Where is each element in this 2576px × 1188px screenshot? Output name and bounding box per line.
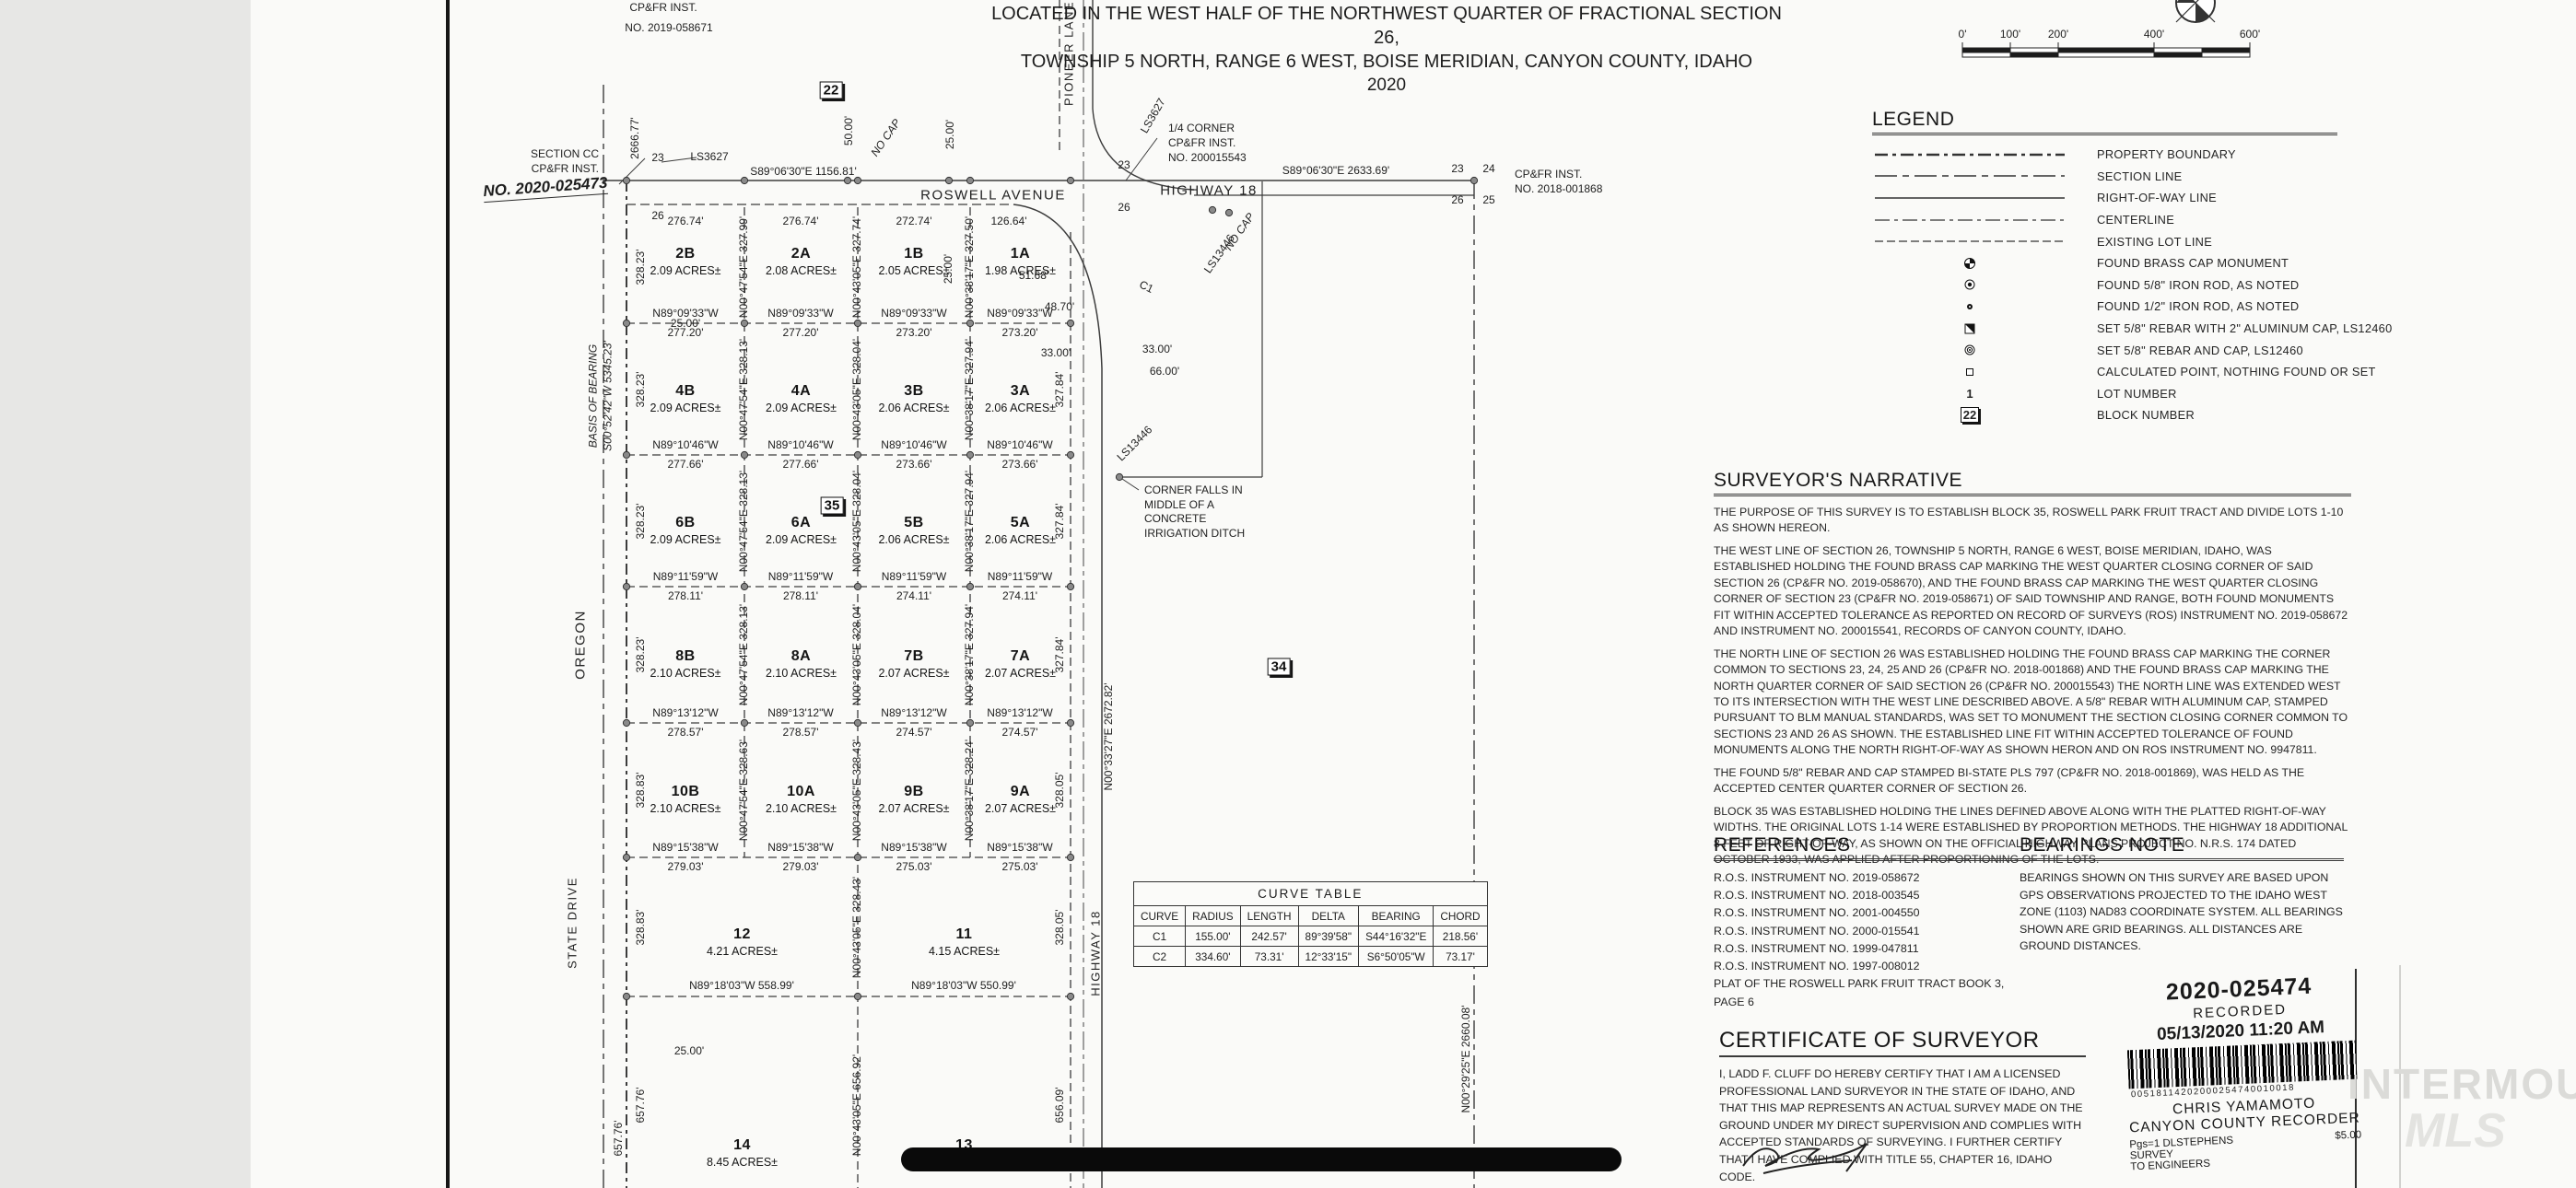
pt-cap-symbol — [1872, 343, 2067, 357]
narrative-body: THE PURPOSE OF THIS SURVEY IS TO ESTABLI… — [1714, 505, 2351, 868]
boundary-bearing: N89°13'12"W — [767, 706, 833, 721]
boundary-bearing-vertical: N00°43'05"E 328.04' — [850, 604, 865, 705]
lot-acreage: 2.07 ACRES± — [985, 667, 1056, 680]
bearings-note-text: BEARINGS SHOWN ON THIS SURVEY ARE BASED … — [2020, 869, 2344, 955]
curve-table-header: BEARING — [1359, 906, 1434, 926]
lot-number: 12 — [707, 926, 778, 943]
boundary-bearing: N89°18'03"W 550.99' — [911, 979, 1016, 994]
lot-number: 9A — [985, 784, 1056, 800]
boundary-bearing-vertical: N00°47'54"E 328.13' — [737, 470, 752, 571]
lot-label: 2A2.08 ACRES± — [766, 246, 837, 277]
lot-label: 9A2.07 ACRES± — [985, 784, 1056, 815]
monument-point — [854, 993, 861, 999]
plat-annotation: 33.00' — [1041, 346, 1071, 361]
scale-label: 600' — [2240, 28, 2260, 42]
monument-point — [741, 177, 747, 183]
boundary-bearing-vertical: N00°43'05"E 327.74' — [850, 215, 865, 317]
lot-acreage: 2.06 ACRES± — [985, 533, 1056, 546]
boundary-bearing-vertical: 327.84' — [1053, 503, 1068, 539]
plat-annotation: S89°06'30"E 1156.81' — [750, 165, 857, 180]
line-section-symbol — [1872, 171, 2067, 181]
monument-point — [623, 451, 629, 458]
monument-point — [623, 320, 629, 326]
monument-point — [854, 583, 861, 589]
boundary-bearing: N89°10'46"W — [767, 438, 833, 453]
lot-acreage: 2.05 ACRES± — [878, 264, 949, 277]
pt-brass-symbol-icon — [1962, 256, 1977, 271]
boundary-distance: 277.20' — [783, 326, 819, 341]
survey-plat-page: LOCATED IN THE WEST HALF OF THE NORTHWES… — [0, 0, 2576, 1188]
plat-annotation: 26 — [1451, 193, 1463, 208]
watermark-line-1: INTERMOUNTAIN — [2348, 1059, 2576, 1109]
line-center-symbol — [1872, 215, 2067, 225]
boundary-bearing-vertical: 328.23' — [634, 637, 649, 673]
lot-acreage: 2.07 ACRES± — [985, 802, 1056, 815]
plat-annotation: 51.68' — [1019, 269, 1048, 284]
lot-number: 10A — [766, 784, 837, 800]
legend-item-label: PROPERTY BOUNDARY — [2097, 147, 2236, 161]
boundary-bearing-vertical: 656.09' — [1053, 1088, 1068, 1124]
plat-annotation: 26 — [651, 209, 663, 224]
lot-label: 7A2.07 ACRES± — [985, 648, 1056, 680]
lot-label: 5B2.06 ACRES± — [878, 515, 949, 546]
lot-acreage: 4.15 ACRES± — [929, 945, 1000, 958]
plat-annotation: 23 — [651, 151, 663, 166]
reference-item: R.O.S. INSTRUMENT NO. 2000-015541 — [1714, 923, 2020, 940]
legend-item-label: CALCULATED POINT, NOTHING FOUND OR SET — [2097, 365, 2376, 379]
block-number-marker: 22 — [820, 82, 843, 99]
pt-calc-symbol — [1872, 365, 2067, 379]
monument-point — [1116, 473, 1122, 480]
legend-heading: LEGEND — [1872, 109, 2337, 135]
lot-acreage: 2.09 ACRES± — [766, 533, 837, 546]
certificate-panel: CERTIFICATE OF SURVEYOR I, LADD F. CLUFF… — [1719, 1028, 2086, 1185]
boundary-distance: 278.11' — [668, 589, 703, 604]
pt-alum-symbol-icon — [1962, 321, 1977, 336]
lot-acreage: 4.21 ACRES± — [707, 945, 778, 958]
pt-brass-symbol — [1872, 256, 2067, 271]
pt-rod58-symbol-icon — [1962, 277, 1977, 292]
curve-table-header: CURVE — [1134, 906, 1186, 926]
boundary-bearing-vertical: 327.84' — [1053, 637, 1068, 673]
curve-table: CURVE TABLECURVERADIUSLENGTHDELTABEARING… — [1133, 881, 1488, 967]
line-row-symbol — [1872, 193, 2067, 203]
pt-rod58-symbol — [1872, 277, 2067, 292]
legend-item-label: EXISTING LOT LINE — [2097, 235, 2212, 249]
boundary-bearing-vertical: N00°43'05"E 328.04' — [850, 470, 865, 571]
boundary-distance: 279.03' — [668, 860, 704, 875]
lot-label: 6B2.09 ACRES± — [650, 515, 720, 546]
lot-label: 10B2.10 ACRES± — [650, 784, 720, 815]
references-list: R.O.S. INSTRUMENT NO. 2019-058672R.O.S. … — [1714, 869, 2020, 1011]
curve-table-cell: 89°39'58" — [1298, 926, 1359, 947]
scale-bar — [1962, 42, 2250, 57]
boundary-bearing-vertical: N00°43'05"E 656.92' — [850, 1054, 865, 1156]
lot-number: 14 — [707, 1137, 778, 1154]
legend-item: PROPERTY BOUNDARY — [1872, 144, 2337, 166]
plat-annotation: NO. 200015543 — [1168, 151, 1247, 166]
boundary-distance: 273.66' — [1002, 458, 1038, 472]
mls-watermark: INTERMOUNTAIN MLS — [2348, 1059, 2576, 1159]
north-arrow-icon — [2176, 0, 2215, 22]
curve-table-cell: 334.60' — [1186, 947, 1241, 967]
monument-point — [1067, 854, 1073, 860]
monument-point — [1209, 206, 1215, 213]
narrative-paragraph: THE NORTH LINE OF SECTION 26 WAS ESTABLI… — [1714, 646, 2351, 759]
curve-table-cell: 12°33'15" — [1298, 947, 1359, 967]
curve-table-cell: 155.00' — [1186, 926, 1241, 947]
monument-point — [966, 320, 973, 326]
line-section-sample — [1873, 171, 2067, 181]
legend-item-label: FOUND 5/8" IRON ROD, AS NOTED — [2097, 278, 2299, 292]
monument-point — [1067, 451, 1073, 458]
plat-annotation: CORNER FALLS IN MIDDLE OF A CONCRETE IRR… — [1144, 483, 1245, 541]
legend-item: 1LOT NUMBER — [1872, 383, 2337, 405]
line-property-sample — [1873, 150, 2067, 159]
lot-label: 3B2.06 ACRES± — [878, 383, 949, 414]
monument-point — [854, 719, 861, 726]
boundary-distance: 275.03' — [1002, 860, 1038, 875]
legend-item: EXISTING LOT LINE — [1872, 230, 2337, 252]
pt-alum-symbol — [1872, 321, 2067, 336]
scale-label: 100' — [2000, 28, 2020, 42]
lot-label: 9B2.07 ACRES± — [878, 784, 949, 815]
boundary-bearing-vertical: 328.05' — [1053, 773, 1068, 809]
curve-table-cell: S44°16'32"E — [1359, 926, 1434, 947]
plat-annotation: 25.00' — [942, 254, 956, 284]
boundary-bearing-vertical: 328.23' — [634, 371, 649, 407]
txt-block-symbol: 22 — [1872, 407, 2067, 423]
plat-annotation: S89°06'30"E 2633.69' — [1282, 164, 1389, 179]
boundary-bearing: N89°13'12"W — [652, 706, 718, 721]
title-line-2: TOWNSHIP 5 NORTH, RANGE 6 WEST, BOISE ME… — [990, 50, 1783, 74]
lot-label: 1B2.05 ACRES± — [878, 246, 949, 277]
narrative-paragraph: THE FOUND 5/8" REBAR AND CAP STAMPED BI-… — [1714, 765, 2351, 798]
legend-item: FOUND 5/8" IRON ROD, AS NOTED — [1872, 274, 2337, 297]
curve-table-cell: 73.17' — [1434, 947, 1487, 967]
redaction-bar — [901, 1147, 1622, 1171]
lot-label: 4B2.09 ACRES± — [650, 383, 720, 414]
boundary-bearing: N89°11'59"W — [882, 570, 947, 585]
legend-item-label: SET 5/8" REBAR WITH 2" ALUMINUM CAP, LS1… — [2097, 321, 2393, 335]
boundary-bearing: N89°11'59"W — [768, 570, 834, 585]
boundary-distance: 272.74' — [896, 215, 932, 229]
legend-item: CALCULATED POINT, NOTHING FOUND OR SET — [1872, 361, 2337, 383]
curve-table-header: DELTA — [1298, 906, 1359, 926]
legend-item-label: CENTERLINE — [2097, 213, 2174, 227]
legend-item-label: BLOCK NUMBER — [2097, 408, 2195, 422]
lot-acreage: 2.10 ACRES± — [766, 667, 837, 680]
legend-item-label: LOT NUMBER — [2097, 387, 2177, 401]
scale-label: 400' — [2144, 28, 2164, 42]
monument-point — [623, 583, 629, 589]
boundary-distance: 279.03' — [783, 860, 819, 875]
boundary-bearing-vertical: N00°38'17"E 327.50' — [963, 215, 978, 317]
monument-point — [741, 719, 747, 726]
plat-annotation: OREGON — [571, 610, 590, 680]
curve-table-header: LENGTH — [1240, 906, 1298, 926]
boundary-bearing-vertical: N00°43'05"E 328.43' — [850, 740, 865, 841]
boundary-distance: 276.74' — [783, 215, 819, 229]
legend-item-label: RIGHT-OF-WAY LINE — [2097, 191, 2217, 204]
curve-table-cell: C1 — [1134, 926, 1186, 947]
bearings-note-panel: BEARINGS NOTE BEARINGS SHOWN ON THIS SUR… — [2020, 834, 2344, 955]
lot-acreage: 2.10 ACRES± — [766, 802, 837, 815]
monument-point — [1470, 177, 1477, 183]
boundary-bearing: N89°13'12"W — [881, 706, 946, 721]
scale-label: 0' — [1959, 28, 1967, 42]
certificate-heading: CERTIFICATE OF SURVEYOR — [1719, 1028, 2086, 1057]
plat-annotation: SECTION CC — [531, 147, 599, 162]
lot-number: 4A — [766, 383, 837, 400]
lot-number: 5A — [985, 515, 1056, 531]
boundary-distance: 274.11' — [896, 589, 931, 604]
boundary-bearing: N89°13'12"W — [987, 706, 1052, 721]
boundary-distance: 276.74' — [668, 215, 704, 229]
narrative-paragraph: THE WEST LINE OF SECTION 26, TOWNSHIP 5 … — [1714, 543, 2351, 640]
boundary-bearing: N89°09'33"W — [987, 307, 1052, 321]
plat-annotation: PIONEER LANE — [1062, 1, 1078, 106]
monument-point — [854, 854, 861, 860]
lot-number: 9B — [878, 784, 949, 800]
line-center-sample — [1873, 215, 2067, 225]
plat-annotation: 50.00' — [842, 116, 857, 146]
lot-number: 5B — [878, 515, 949, 531]
legend-item-label: SET 5/8" REBAR AND CAP, LS12460 — [2097, 344, 2303, 357]
line-row-sample — [1873, 193, 2067, 203]
plat-annotation: 24 — [1482, 162, 1494, 177]
boundary-distance: 274.11' — [1002, 589, 1037, 604]
lot-label: 3A2.06 ACRES± — [985, 383, 1056, 414]
boundary-bearing: N89°09'33"W — [881, 307, 946, 321]
lot-label: 8B2.10 ACRES± — [650, 648, 720, 680]
lot-label: 5A2.06 ACRES± — [985, 515, 1056, 546]
lot-number: 7B — [878, 648, 949, 665]
title-line-1: LOCATED IN THE WEST HALF OF THE NORTHWES… — [990, 2, 1783, 50]
boundary-distance: 275.03' — [896, 860, 932, 875]
legend-item-label: FOUND BRASS CAP MONUMENT — [2097, 256, 2289, 270]
boundary-bearing-vertical: N00°38'17"E 327.94' — [963, 338, 978, 439]
lot-number: 3A — [985, 383, 1056, 400]
block-number-marker: 34 — [1268, 658, 1291, 676]
curve-table-grid: CURVE TABLECURVERADIUSLENGTHDELTABEARING… — [1133, 881, 1488, 967]
boundary-bearing-vertical: N00°47'54"E 328.63' — [737, 740, 752, 841]
lot-number: 10B — [650, 784, 720, 800]
boundary-bearing-vertical: N00°43'05"E 328.04' — [850, 338, 865, 439]
plat-annotation: 23 — [1451, 162, 1463, 177]
boundary-bearing-vertical: N00°38'17"E 327.94' — [963, 604, 978, 705]
certificate-text: I, LADD F. CLUFF DO HEREBY CERTIFY THAT … — [1719, 1066, 2086, 1185]
legend-item: SET 5/8" REBAR WITH 2" ALUMINUM CAP, LS1… — [1872, 318, 2337, 340]
plat-annotation: 657.76' — [612, 1121, 626, 1157]
line-lot-sample — [1873, 237, 2067, 246]
plat-annotation: 23 — [1118, 158, 1130, 173]
curve-table-title: CURVE TABLE — [1134, 882, 1488, 906]
plat-annotation: 25.00' — [674, 1044, 704, 1059]
boundary-distance: 273.20' — [1002, 326, 1038, 341]
lot-number: 11 — [929, 926, 1000, 943]
lot-acreage: 2.06 ACRES± — [878, 533, 949, 546]
plat-annotation: 26 — [1118, 201, 1130, 215]
boundary-distance: 274.57' — [896, 726, 932, 740]
lot-acreage: 2.09 ACRES± — [650, 533, 720, 546]
curve-table-cell: C2 — [1134, 947, 1186, 967]
plat-annotation: NO. 2018-001868 — [1515, 182, 1602, 197]
boundary-bearing-vertical: 328.23' — [634, 503, 649, 539]
block-number-marker: 35 — [821, 497, 844, 515]
boundary-bearing: N89°15'38"W — [881, 841, 946, 856]
pt-rod12-symbol — [1872, 299, 2067, 314]
boundary-bearing-vertical: N00°47'54"E 328.13' — [737, 604, 752, 705]
plat-annotation: BASIS OF BEARING S00°52'42"W 5345.23' — [586, 341, 615, 451]
lot-number: 6B — [650, 515, 720, 531]
plat-annotation: HIGHWAY 18 — [1160, 181, 1258, 200]
plat-annotation: 1/4 CORNER — [1168, 122, 1235, 136]
monument-point — [966, 583, 973, 589]
stamp-fee: $5.00 — [2335, 1129, 2361, 1141]
monument-point — [854, 451, 861, 458]
lot-acreage: 2.08 ACRES± — [766, 264, 837, 277]
lot-number: 1B — [878, 246, 949, 262]
plat-annotation: 25 — [1482, 193, 1494, 208]
monument-point — [1067, 583, 1073, 589]
lot-number: 1A — [985, 246, 1056, 262]
lot-acreage: 2.07 ACRES± — [878, 667, 949, 680]
boundary-distance: 278.57' — [783, 726, 819, 740]
monument-point — [623, 854, 629, 860]
boundary-bearing: N89°15'38"W — [652, 841, 718, 856]
curve-table-cell: 73.31' — [1240, 947, 1298, 967]
boundary-bearing-vertical: N00°43'05"E 328.43' — [850, 876, 865, 977]
curve-table-header: CHORD — [1434, 906, 1487, 926]
lot-number: 4B — [650, 383, 720, 400]
narrative-panel: SURVEYOR'S NARRATIVE THE PURPOSE OF THIS… — [1714, 470, 2351, 875]
lot-acreage: 2.09 ACRES± — [650, 264, 720, 277]
plat-annotation: LS3627 — [690, 150, 728, 165]
lot-acreage: 8.45 ACRES± — [707, 1156, 778, 1169]
legend-item: SECTION LINE — [1872, 166, 2337, 188]
boundary-bearing: N89°09'33"W — [767, 307, 833, 321]
pt-rod12-symbol-icon — [1962, 299, 1977, 314]
lot-label: 6A2.09 ACRES± — [766, 515, 837, 546]
lot-number: 8A — [766, 648, 837, 665]
legend-item-label: SECTION LINE — [2097, 169, 2183, 183]
plat-annotation: NO. 2019-058671 — [625, 21, 712, 36]
boundary-distance: 126.64' — [991, 215, 1027, 229]
plat-annotation: 25.00' — [671, 317, 700, 332]
monument-point — [1067, 719, 1073, 726]
plat-annotation: 25.00' — [943, 120, 958, 149]
monument-point — [1067, 320, 1073, 326]
legend-item-label: FOUND 1/2" IRON ROD, AS NOTED — [2097, 299, 2299, 313]
references-heading: REFERENCES — [1714, 834, 2020, 861]
boundary-distance: 278.11' — [783, 589, 818, 604]
monument-point — [741, 320, 747, 326]
narrative-paragraph: THE PURPOSE OF THIS SURVEY IS TO ESTABLI… — [1714, 505, 2351, 537]
boundary-bearing: N89°10'46"W — [652, 438, 718, 453]
monument-point — [1225, 209, 1232, 215]
narrative-heading: SURVEYOR'S NARRATIVE — [1714, 470, 2351, 496]
boundary-bearing: N89°15'38"W — [987, 841, 1052, 856]
lot-label: 124.21 ACRES± — [707, 926, 778, 958]
plat-annotation: N00°29'25"E 2660.08' — [1459, 1005, 1474, 1112]
monument-point — [1067, 993, 1073, 999]
boundary-bearing: N89°15'38"W — [767, 841, 833, 856]
legend-item: FOUND BRASS CAP MONUMENT — [1872, 252, 2337, 274]
boundary-distance: 278.57' — [668, 726, 704, 740]
plat-title: LOCATED IN THE WEST HALF OF THE NORTHWES… — [990, 2, 1783, 96]
curve-table-cell: 218.56' — [1434, 926, 1487, 947]
legend-panel: LEGEND PROPERTY BOUNDARYSECTION LINERIGH… — [1872, 109, 2337, 426]
monument-point — [966, 177, 973, 183]
boundary-distance: 277.66' — [783, 458, 819, 472]
reference-item: R.O.S. INSTRUMENT NO. 2001-004550 — [1714, 904, 2020, 922]
legend-item: CENTERLINE — [1872, 209, 2337, 231]
plat-annotation: N00°33'27"E 2672.82' — [1102, 682, 1117, 790]
pt-cap-symbol-icon — [1962, 343, 1977, 357]
monument-point — [623, 993, 629, 999]
monument-point — [966, 719, 973, 726]
boundary-bearing: N89°10'46"W — [881, 438, 946, 453]
boundary-bearing: N89°11'59"W — [988, 570, 1053, 585]
plat-annotation: 48.70' — [1045, 300, 1074, 315]
lot-acreage: 2.09 ACRES± — [766, 402, 837, 414]
txt-lot-symbol: 1 — [1872, 387, 2067, 401]
boundary-distance: 273.20' — [896, 326, 932, 341]
boundary-bearing-vertical: 657.76' — [634, 1088, 649, 1124]
boundary-bearing: N89°11'59"W — [653, 570, 719, 585]
reference-item: R.O.S. INSTRUMENT NO. 2018-003545 — [1714, 887, 2020, 904]
lot-label: 114.15 ACRES± — [929, 926, 1000, 958]
lot-label: 10A2.10 ACRES± — [766, 784, 837, 815]
legend-item: 22BLOCK NUMBER — [1872, 404, 2337, 426]
watermark-line-2: MLS — [2405, 1103, 2576, 1159]
reference-item: R.O.S. INSTRUMENT NO. 1999-047811 — [1714, 940, 2020, 958]
plat-annotation: CP&FR INST. — [629, 1, 697, 16]
lot-acreage: 2.10 ACRES± — [650, 802, 720, 815]
references-panel: REFERENCES R.O.S. INSTRUMENT NO. 2019-05… — [1714, 834, 2020, 1011]
legend-item: RIGHT-OF-WAY LINE — [1872, 187, 2337, 209]
boundary-bearing: N89°10'46"W — [987, 438, 1052, 453]
monument-point — [966, 451, 973, 458]
reference-item: PLAT OF THE ROSWELL PARK FRUIT TRACT BOO… — [1714, 975, 2020, 1010]
scale-label: 200' — [2048, 28, 2068, 42]
monument-point — [741, 451, 747, 458]
plat-annotation: 66.00' — [1150, 365, 1179, 379]
plat-annotation: CP&FR INST. — [1515, 168, 1582, 182]
block-number-sample: 22 — [1961, 407, 1979, 423]
lot-label: 7B2.07 ACRES± — [878, 648, 949, 680]
plat-annotation: CP&FR INST. — [1168, 136, 1235, 151]
lot-number: 6A — [766, 515, 837, 531]
monument-point — [1067, 177, 1073, 183]
line-property-symbol — [1872, 150, 2067, 159]
recorder-stamp: 2020-025474 RECORDED 05/13/2020 11:20 AM… — [2119, 971, 2367, 1172]
lot-number: 2B — [650, 246, 720, 262]
boundary-bearing-vertical: 328.83' — [634, 773, 649, 809]
plat-annotation: 2666.77' — [628, 117, 643, 159]
lot-number: 8B — [650, 648, 720, 665]
boundary-bearing-vertical: N00°47'54"E 328.13' — [737, 338, 752, 439]
legend-item: FOUND 1/2" IRON ROD, AS NOTED — [1872, 296, 2337, 318]
lot-acreage: 2.09 ACRES± — [650, 402, 720, 414]
reference-item: R.O.S. INSTRUMENT NO. 2019-058672 — [1714, 869, 2020, 887]
lot-label: 2B2.09 ACRES± — [650, 246, 720, 277]
plat-annotation: STATE DRIVE — [566, 877, 581, 969]
boundary-bearing-vertical: N00°38'17"E 327.94' — [963, 470, 978, 571]
reference-item: R.O.S. INSTRUMENT NO. 1997-008012 — [1714, 958, 2020, 975]
lot-number: 7A — [985, 648, 1056, 665]
